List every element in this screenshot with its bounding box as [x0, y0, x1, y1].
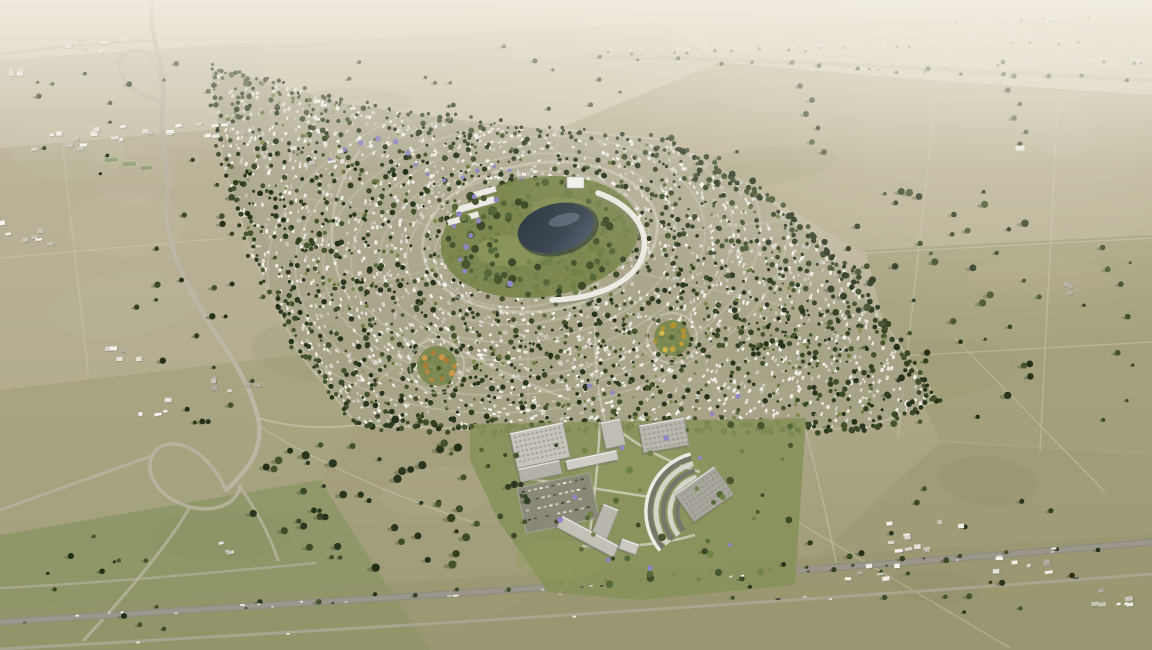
haze-topright: [0, 0, 1152, 650]
aerial-render-stage: [0, 0, 1152, 650]
masterplan-aerial-view: [0, 0, 1152, 650]
